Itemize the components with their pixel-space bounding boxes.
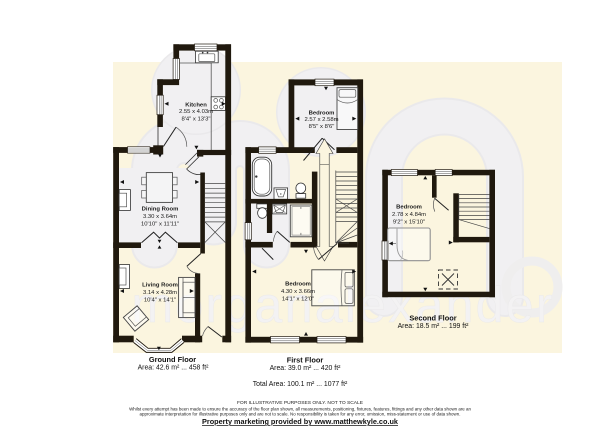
svg-text:Dining Room: Dining Room [142,206,179,212]
svg-text:3.30 x 3.64m: 3.30 x 3.64m [143,214,177,220]
svg-text:First Floor: First Floor [287,356,324,365]
svg-text:Area: 42.6 m² ... 458 ft²: Area: 42.6 m² ... 458 ft² [138,365,210,372]
svg-text:2.78 x 4.84m: 2.78 x 4.84m [392,212,426,218]
svg-text:Living Room: Living Room [142,282,178,288]
svg-text:8'5" x 8'6": 8'5" x 8'6" [309,124,335,130]
svg-text:4.30 x 3.66m: 4.30 x 3.66m [281,289,315,295]
svg-text:Ground Floor: Ground Floor [149,355,196,364]
svg-text:Property marketing provided by: Property marketing provided by www.matth… [202,417,399,426]
svg-text:2.55 x 4.03m: 2.55 x 4.03m [179,109,213,115]
svg-text:14'1" x 12'0": 14'1" x 12'0" [282,296,314,302]
svg-text:10'4" x 14'1": 10'4" x 14'1" [144,297,176,303]
svg-text:Kitchen: Kitchen [185,102,207,108]
svg-text:Bedroom: Bedroom [396,204,422,210]
svg-text:approximate interpretation for: approximate interpretation for illustrat… [140,411,461,416]
svg-text:Second Floor: Second Floor [409,314,456,323]
svg-text:10'10" x 11'11": 10'10" x 11'11" [141,221,179,227]
svg-text:Bedroom: Bedroom [309,111,335,117]
svg-text:3.14 x 4.28m: 3.14 x 4.28m [143,290,177,296]
svg-text:Total Area: 100.1 m² ... 1077: Total Area: 100.1 m² ... 1077 ft² [253,381,348,388]
svg-text:Area: 39.0 m² ... 420 ft²: Area: 39.0 m² ... 420 ft² [270,365,342,372]
svg-text:9'2" x 15'10": 9'2" x 15'10" [393,219,425,225]
svg-text:Bedroom: Bedroom [285,281,311,287]
svg-text:FOR ILLUSTRATIVE PURPOSES ONLY: FOR ILLUSTRATIVE PURPOSES ONLY. NOT TO S… [237,400,364,406]
svg-text:2.57 x 2.58m: 2.57 x 2.58m [304,117,338,123]
svg-text:8'4" x 13'3": 8'4" x 13'3" [181,116,210,122]
svg-text:Area: 18.5 m² ... 199 ft²: Area: 18.5 m² ... 199 ft² [398,323,470,330]
